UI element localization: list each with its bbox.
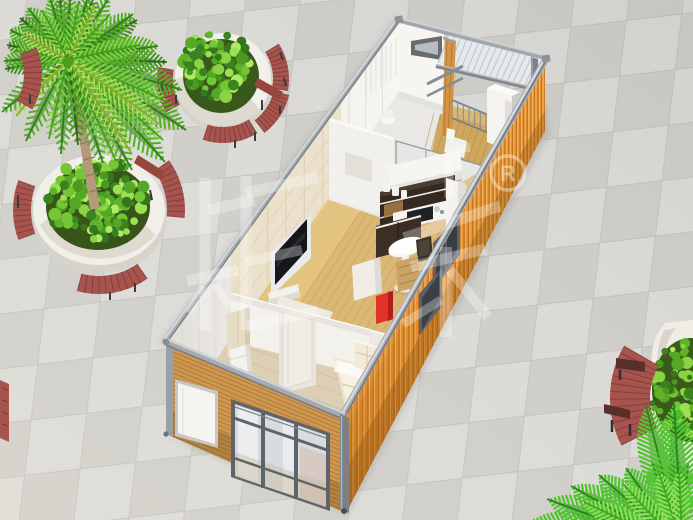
svg-text:R: R: [500, 161, 516, 186]
